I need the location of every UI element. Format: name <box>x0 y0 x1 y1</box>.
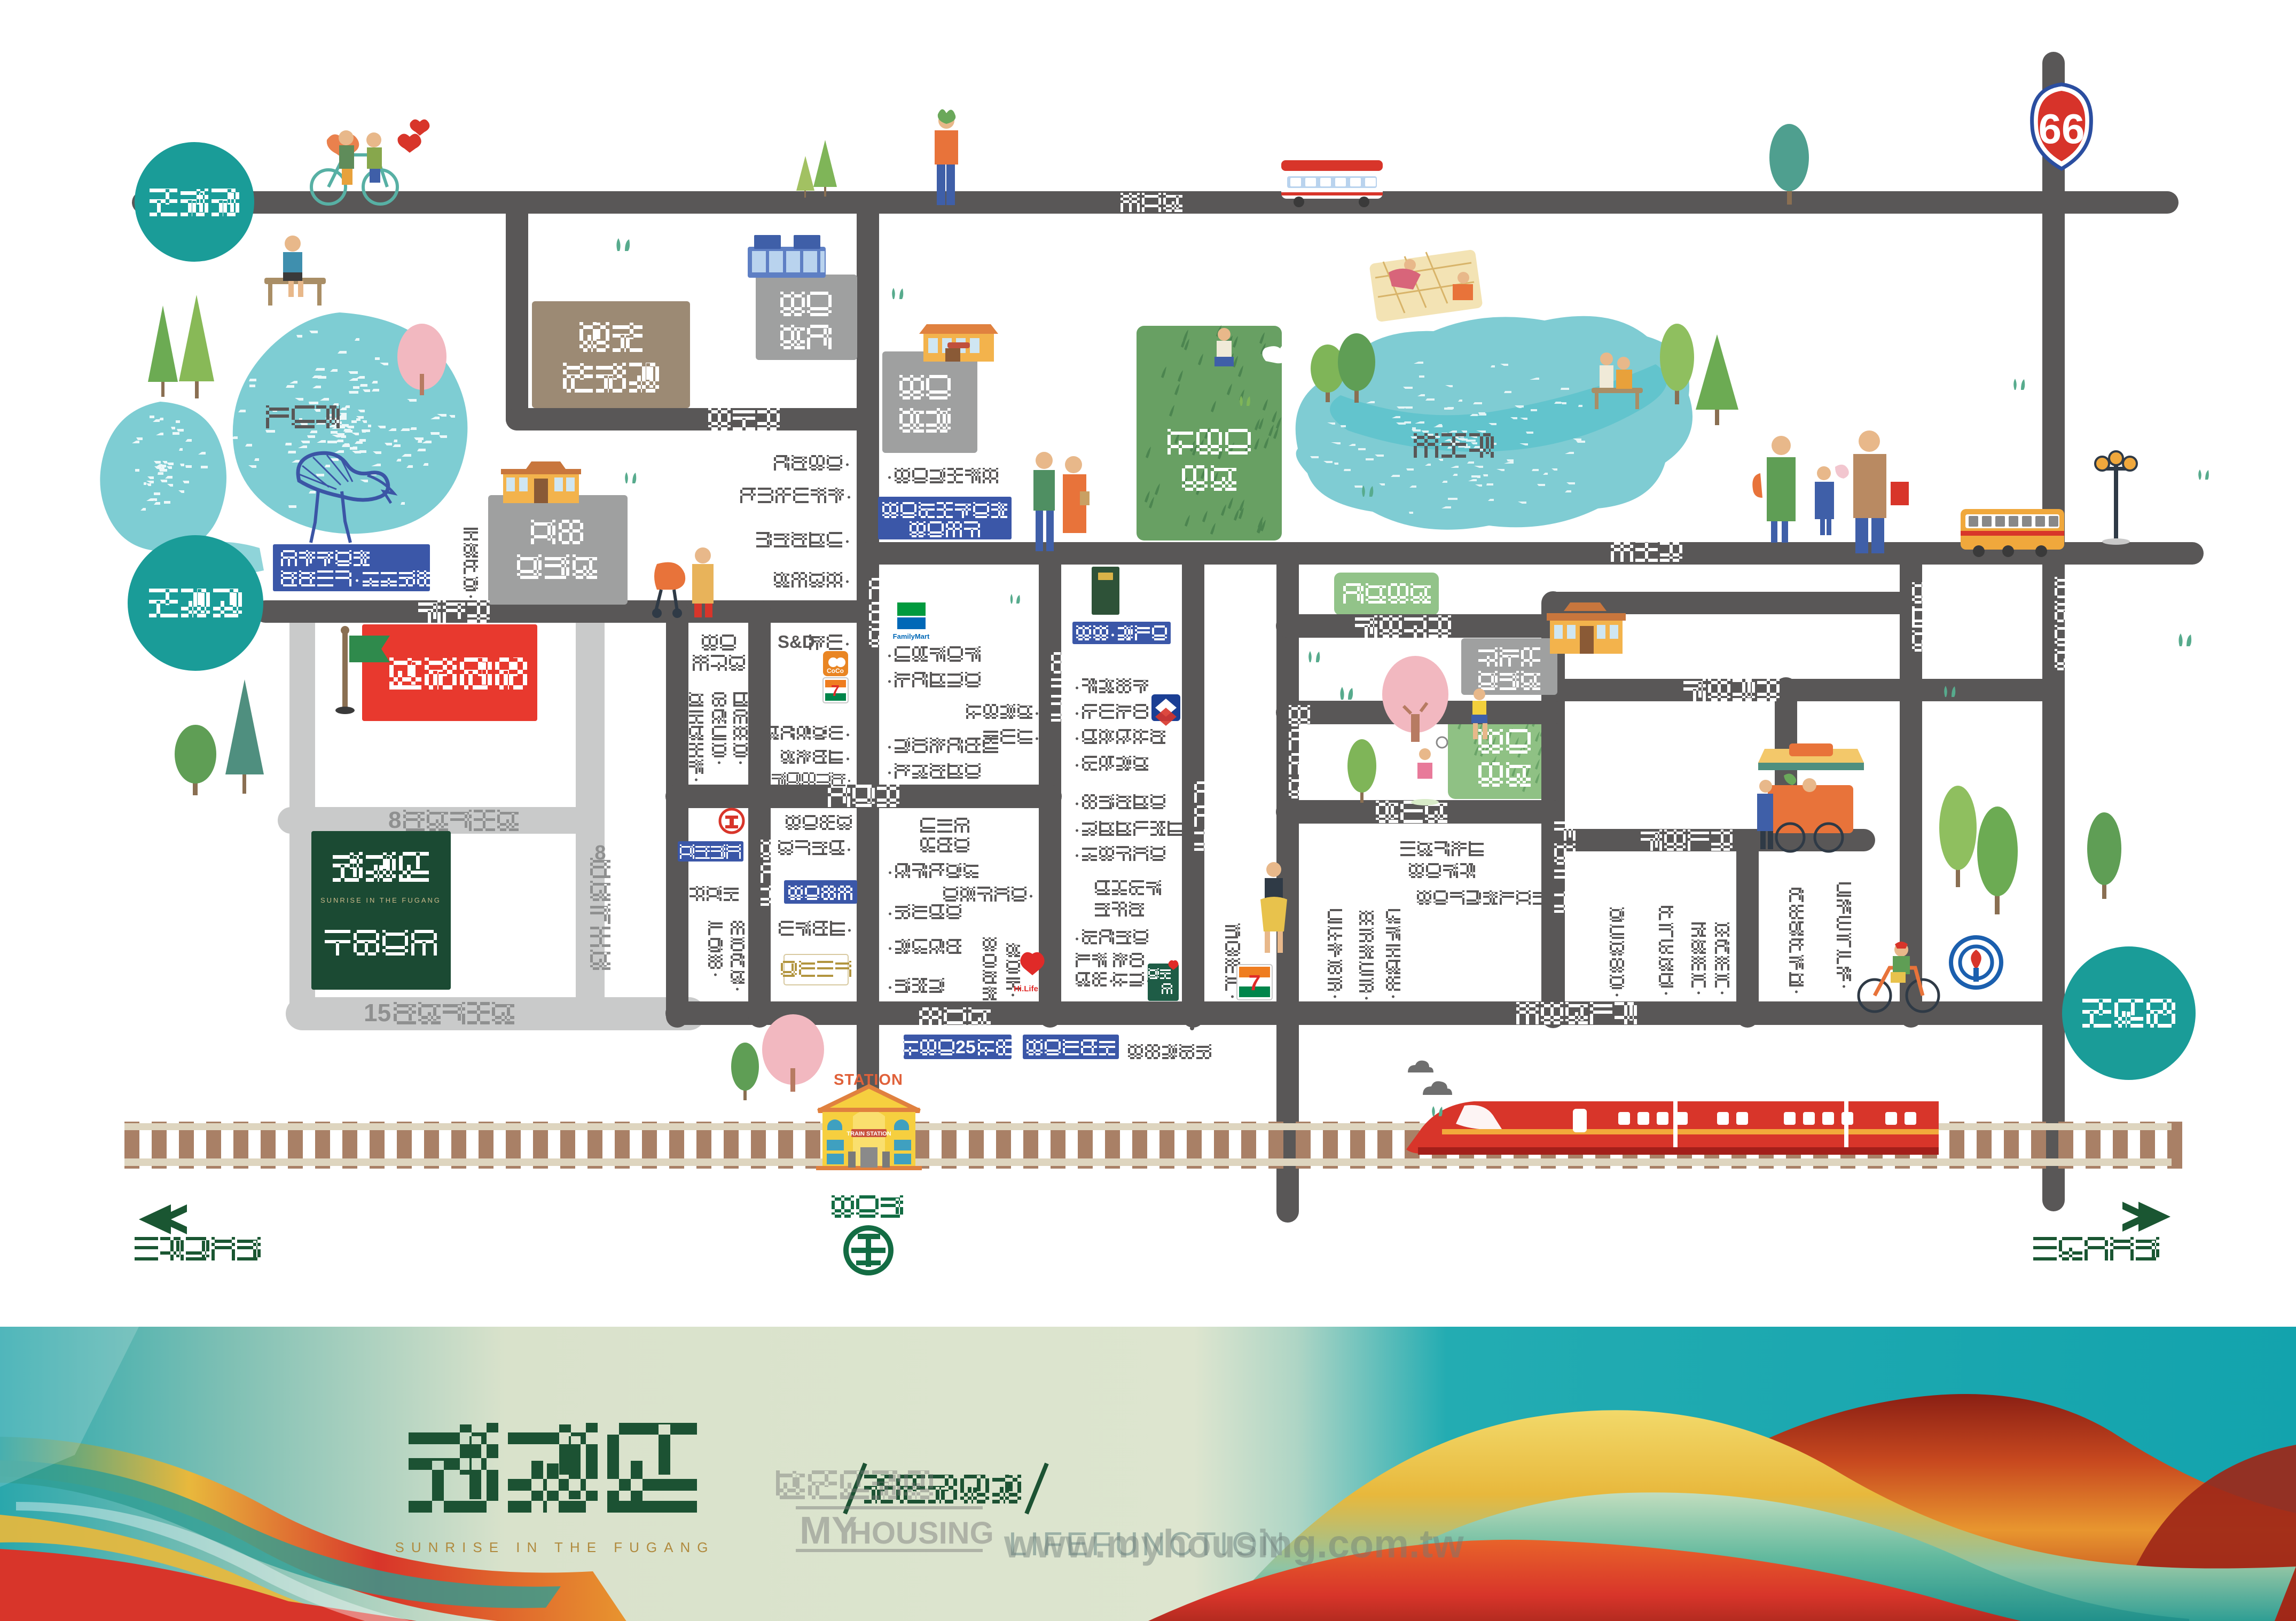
svg-text:S&D: S&D <box>778 632 815 652</box>
svg-text:SUNRISE IN THE FUGANG: SUNRISE IN THE FUGANG <box>395 1539 715 1555</box>
svg-text:25: 25 <box>955 1037 976 1058</box>
svg-text:Hi.Life: Hi.Life <box>1014 984 1038 993</box>
svg-text:TRAIN STATION: TRAIN STATION <box>847 1131 891 1137</box>
svg-text:8: 8 <box>594 842 606 864</box>
svg-text:7: 7 <box>831 683 840 700</box>
svg-text:66: 66 <box>2039 105 2085 152</box>
svg-text:www.myhousing.com.tw: www.myhousing.com.tw <box>1004 1522 1464 1566</box>
svg-text:FamilyMart: FamilyMart <box>893 632 930 640</box>
svg-text:15: 15 <box>364 999 391 1027</box>
svg-text:7: 7 <box>1249 970 1261 995</box>
svg-text:SUNRISE IN THE FUGANG: SUNRISE IN THE FUGANG <box>320 896 441 904</box>
svg-text:8: 8 <box>388 807 401 833</box>
svg-text:MY: MY <box>800 1509 857 1552</box>
svg-text:HOUSING: HOUSING <box>849 1516 994 1550</box>
svg-text:CoCo: CoCo <box>827 667 844 675</box>
